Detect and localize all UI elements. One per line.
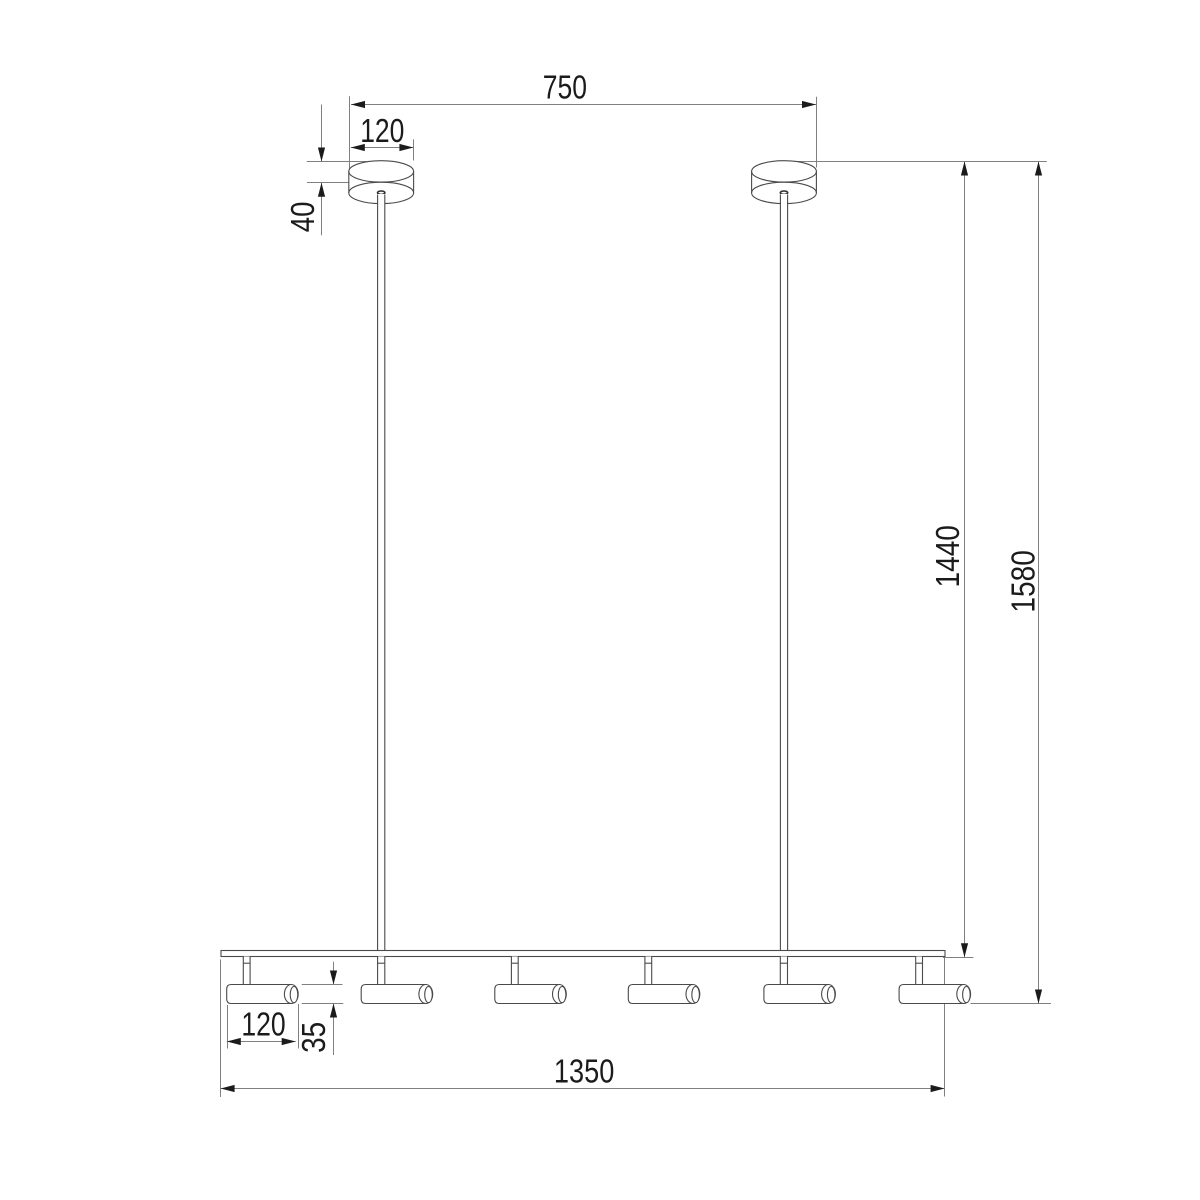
svg-text:40: 40 — [285, 202, 322, 233]
svg-text:1580: 1580 — [1006, 550, 1043, 612]
svg-text:750: 750 — [543, 70, 587, 107]
svg-text:120: 120 — [241, 1007, 285, 1044]
svg-text:1350: 1350 — [554, 1054, 614, 1091]
svg-text:35: 35 — [296, 1022, 333, 1053]
svg-text:120: 120 — [360, 113, 404, 150]
svg-text:1440: 1440 — [930, 525, 967, 587]
